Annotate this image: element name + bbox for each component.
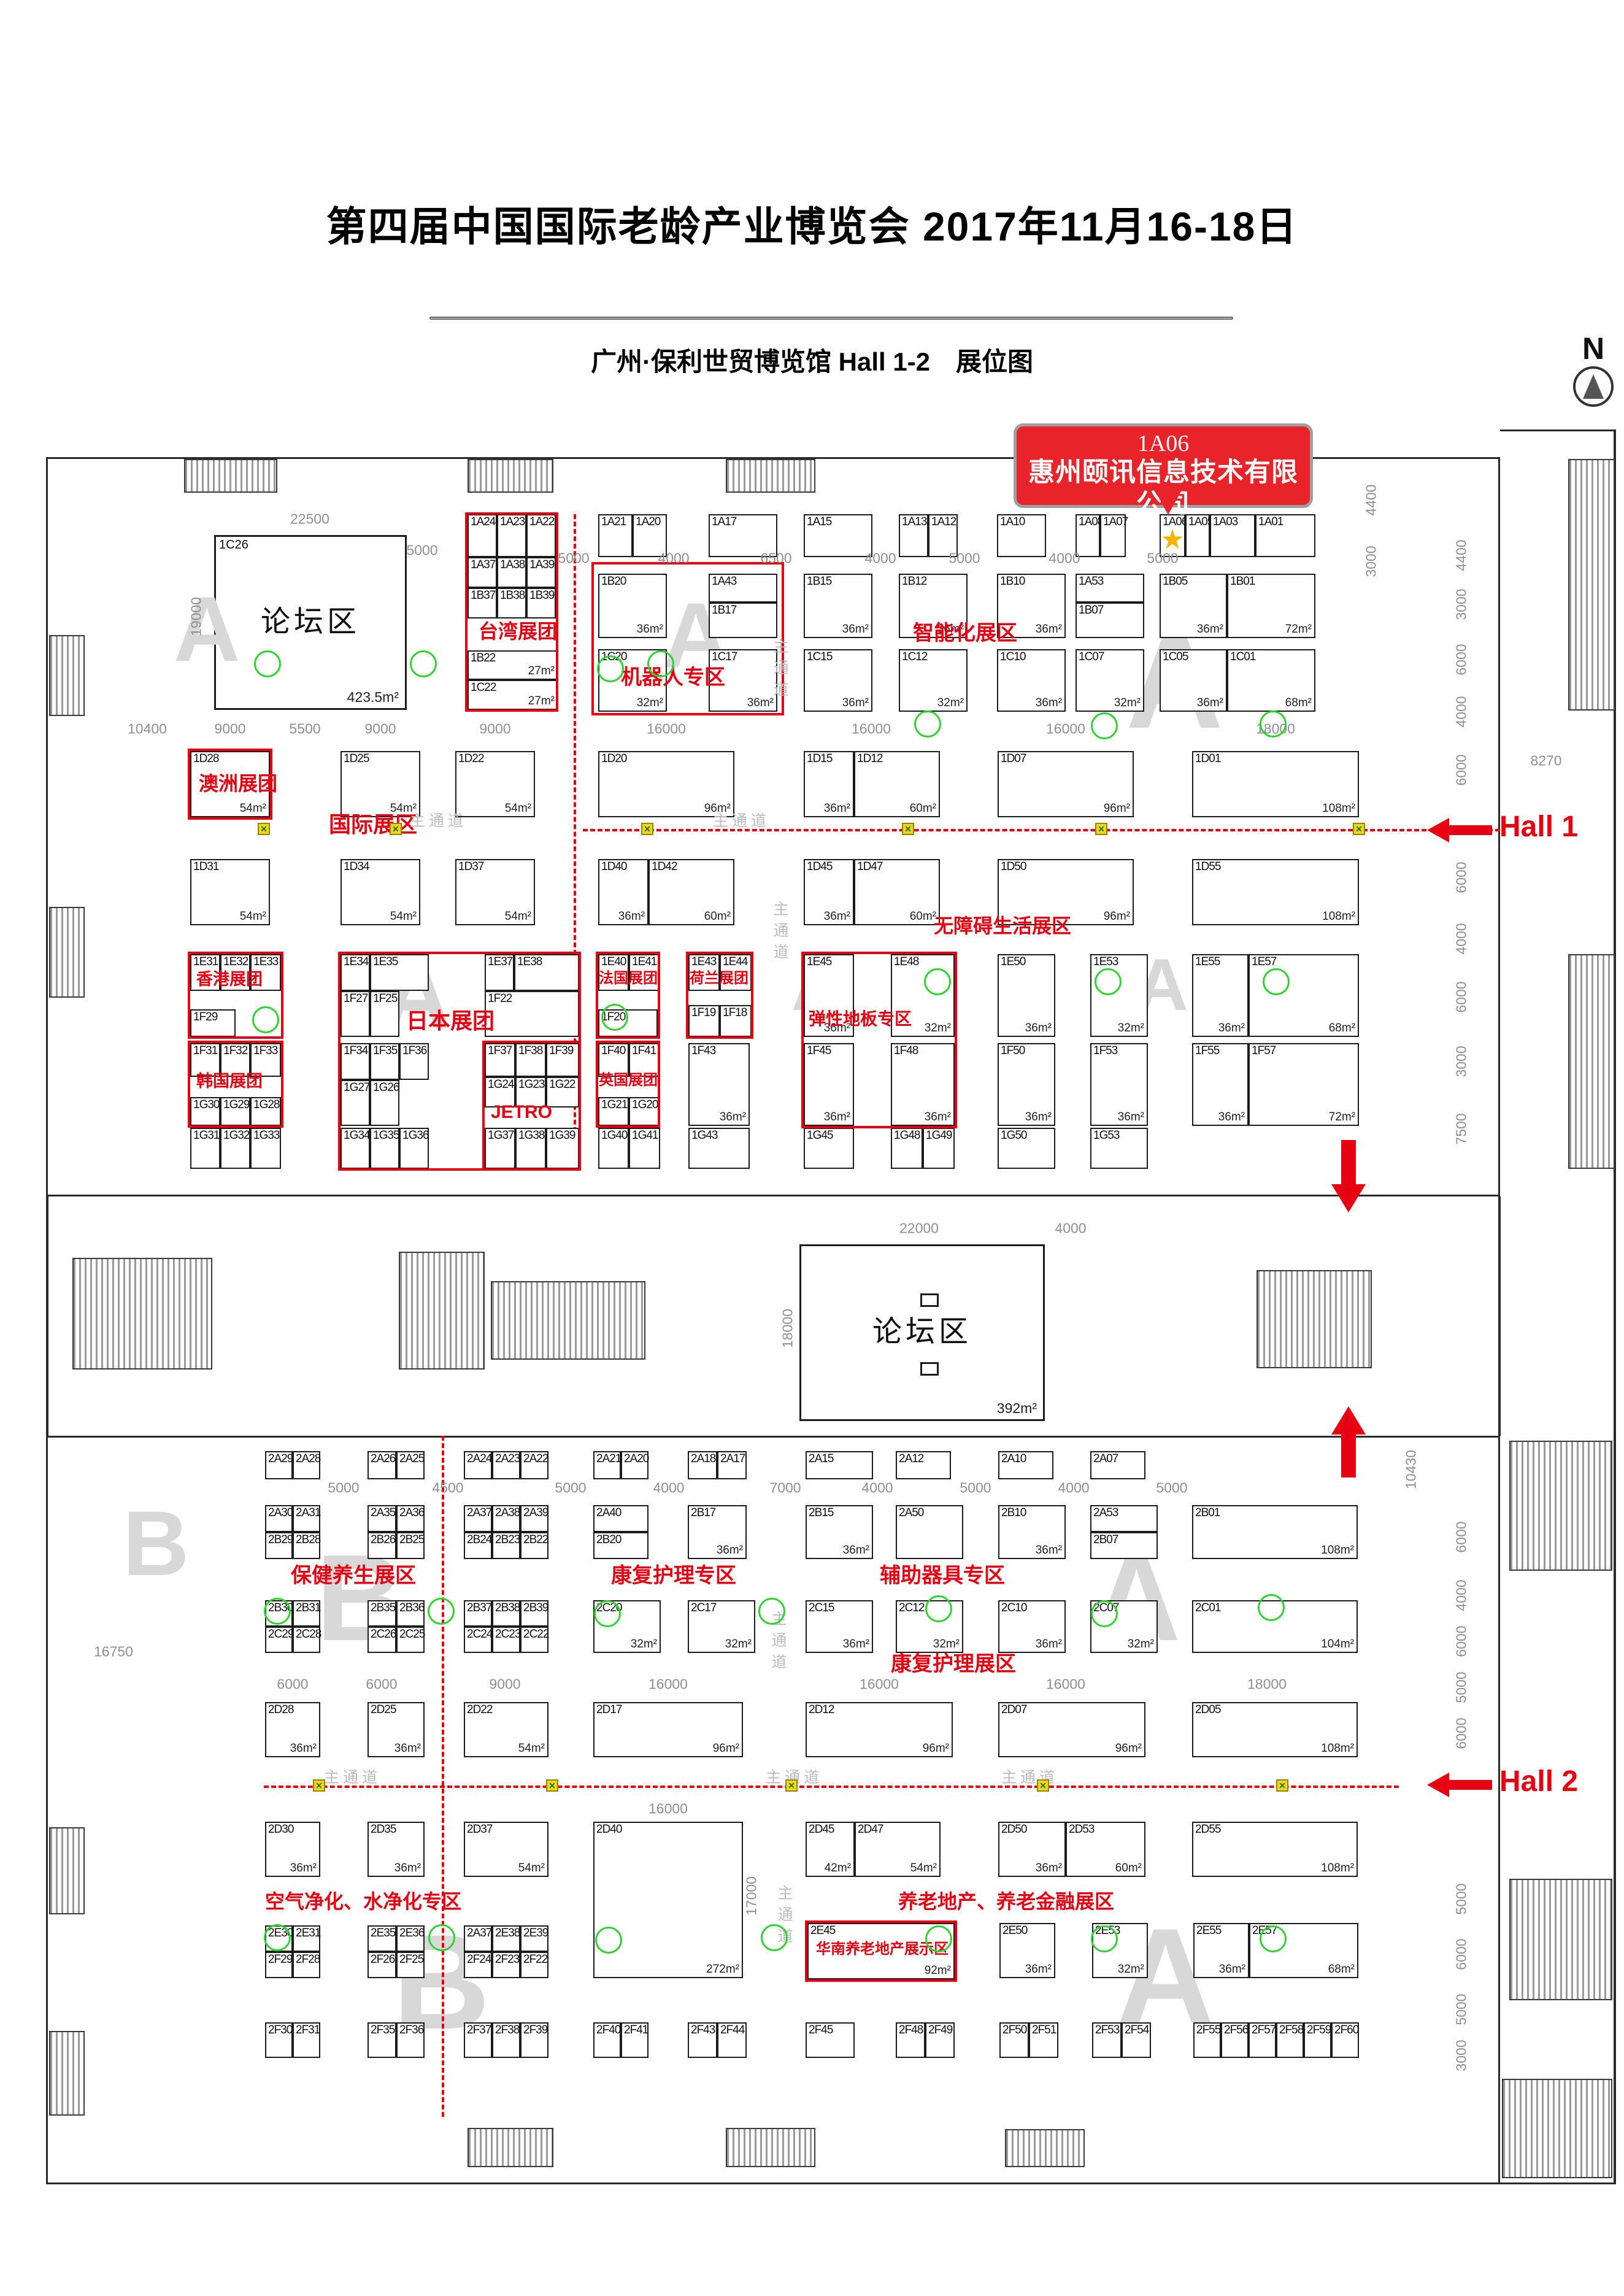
dimension-label: 5000 [555, 1480, 586, 1497]
forum-area-central: 论坛区 392m² [799, 1244, 1045, 1421]
booth-area-label: 36m² [290, 1862, 317, 1875]
booth-id-label: 1F31 [193, 1044, 217, 1058]
booth-2F30: 2F30 [265, 2022, 293, 2058]
dimension-label: 4000 [1055, 1220, 1086, 1237]
forum1-booth-id: 1C26 [219, 538, 248, 552]
booth-1D47: 1D4760m² [854, 859, 940, 925]
booth-area-label: 96m² [713, 1742, 739, 1755]
booth-1D34: 1D3454m² [341, 859, 420, 925]
booth-id-label: 1G21 [601, 1098, 627, 1112]
dimension-label: 16000 [648, 1801, 688, 1817]
stairs-block [726, 2128, 815, 2167]
dimension-label: 6000 [1453, 644, 1470, 675]
booth-id-label: 2F49 [928, 2024, 952, 2037]
booth-id-label: 2B07 [1093, 1533, 1118, 1547]
booth-2B17: 2B1736m² [688, 1505, 747, 1559]
booth-2B39: 2B39 [520, 1600, 548, 1627]
booth-id-label: 1B05 [1163, 575, 1187, 588]
booth-area-label: 108m² [1322, 910, 1355, 923]
booth-1G39: 1G39 [546, 1128, 579, 1169]
booth-2B10: 2B1036m² [998, 1505, 1066, 1559]
booth-area-label: 104m² [1321, 1638, 1354, 1651]
aisle-marker-icon: ✕ [390, 823, 402, 835]
booth-2F38: 2F38 [492, 2022, 520, 2058]
forum-column-marker [920, 1362, 939, 1376]
booth-id-label: 1G41 [632, 1129, 658, 1142]
booth-2D28: 2D2836m² [265, 1702, 320, 1757]
booth-id-label: 1E34 [344, 955, 368, 969]
booth-2C15: 2C1536m² [806, 1600, 873, 1653]
fire-equipment-circle-icon [1260, 711, 1287, 738]
booth-id-label: 2A28 [296, 1452, 320, 1466]
booth-1G21: 1G21 [598, 1097, 629, 1126]
booth-id-label: 2F51 [1032, 2024, 1056, 2037]
booth-id-label: 2B17 [691, 1506, 715, 1520]
booth-id-label: 1F48 [894, 1044, 918, 1058]
dimension-label: 6000 [1453, 861, 1470, 893]
booth-area-label: 36m² [1219, 1963, 1245, 1976]
booth-1G32: 1G32 [220, 1128, 250, 1169]
dimension-label: 4000 [1453, 923, 1470, 954]
booth-id-label: 1G32 [223, 1129, 249, 1142]
booth-1G45: 1G45 [804, 1128, 854, 1169]
booth-id-label: 1B12 [902, 575, 926, 588]
booth-id-label: 1G29 [223, 1098, 249, 1112]
booth-2A36: 2A36 [396, 1505, 425, 1532]
booth-id-label: 2A37 [467, 1506, 491, 1520]
booth-id-label: 2B38 [495, 1601, 520, 1615]
booth-id-label: 1E38 [517, 955, 542, 969]
booth-id-label: 2C23 [495, 1628, 520, 1641]
highlight-company-name: 惠州颐讯信息技术有限公司 [1017, 457, 1310, 520]
main-aisle-divider-line [264, 1786, 1399, 1788]
booth-id-label: 1E32 [223, 955, 248, 969]
highlight-callout: 1A06 惠州颐讯信息技术有限公司 [1014, 423, 1313, 508]
booth-2A20: 2A20 [621, 1451, 648, 1479]
booth-id-label: 2B29 [268, 1533, 293, 1547]
booth-2C28: 2C28 [293, 1627, 320, 1653]
booth-2A07: 2A07 [1090, 1451, 1145, 1479]
booth-id-label: 1G38 [518, 1129, 544, 1142]
fire-equipment-circle-icon [925, 1925, 952, 1952]
fire-equipment-circle-icon [254, 650, 281, 677]
booth-id-label: 2A07 [1093, 1452, 1118, 1466]
booth-1A07: 1A07 [1100, 514, 1126, 557]
booth-id-label: 1E48 [894, 955, 918, 969]
booth-2A21: 2A21 [593, 1451, 621, 1479]
dimension-label: 5000 [406, 542, 437, 559]
booth-1G36: 1G36 [399, 1128, 429, 1169]
booth-area-label: 108m² [1321, 1862, 1354, 1875]
booth-2B24: 2B24 [464, 1532, 492, 1559]
booth-id-label: 1B38 [500, 589, 525, 603]
booth-id-label: 1D28 [193, 752, 218, 766]
booth-2D47: 2D4754m² [855, 1822, 941, 1877]
booth-id-label: 2F56 [1224, 2024, 1248, 2037]
booth-1C10: 1C1036m² [997, 649, 1066, 712]
booth-id-label: 2C10 [1001, 1601, 1026, 1615]
booth-1D12: 1D1260m² [854, 751, 940, 817]
booth-id-label: 1G40 [601, 1129, 627, 1142]
booth-2D05: 2D05108m² [1192, 1702, 1358, 1757]
flow-arrow-shaft [1341, 1433, 1356, 1477]
dimension-label: 4500 [432, 1480, 463, 1497]
fire-equipment-circle-icon [601, 1004, 628, 1031]
booth-1D55: 1D55108m² [1192, 859, 1359, 925]
booth-1B37: 1B37 [468, 588, 497, 618]
booth-area-label: 54m² [390, 910, 417, 923]
booth-area-label: 36m² [843, 1544, 869, 1557]
booth-id-label: 2D37 [467, 1823, 492, 1836]
zone-label: 机器人专区 [621, 666, 725, 689]
booth-2F43: 2F43 [688, 2022, 717, 2058]
booth-1G41: 1G41 [629, 1128, 660, 1169]
booth-2B25: 2B25 [396, 1532, 425, 1559]
forum-column-marker [920, 1293, 939, 1307]
booth-id-label: 2F38 [495, 2024, 519, 2037]
booth-1G34: 1G34 [341, 1128, 370, 1169]
dimension-label: 16000 [860, 1676, 899, 1693]
booth-1B05: 1B0536m² [1160, 574, 1227, 638]
booth-1B07: 1B07 [1076, 603, 1144, 638]
booth-id-label: 1E53 [1093, 955, 1118, 969]
stairs-block [49, 907, 85, 998]
booth-1F25: 1F25 [370, 991, 399, 1037]
booth-id-label: 2B23 [495, 1533, 520, 1547]
stairs-block [49, 1827, 85, 1914]
booth-id-label: 1B39 [529, 589, 554, 603]
booth-1G35: 1G35 [370, 1128, 399, 1169]
dimension-label: 4400 [1363, 484, 1380, 515]
booth-id-label: 2F22 [523, 1953, 547, 1967]
booth-id-label: 1F36 [402, 1044, 426, 1058]
dimension-label: 22000 [899, 1220, 939, 1237]
booth-id-label: 1A53 [1079, 575, 1103, 588]
booth-2D12: 2D1296m² [806, 1702, 953, 1757]
booth-id-label: 1F18 [723, 1006, 747, 1020]
booth-2E55: 2E5536m² [1193, 1923, 1249, 1978]
booth-area-label: 32m² [725, 1638, 752, 1651]
hall2-label: Hall 2 [1499, 1765, 1578, 1798]
booth-id-label: 2A25 [399, 1452, 424, 1466]
forum2-label: 论坛区 [801, 1307, 1043, 1350]
dimension-label: 10430 [1403, 1450, 1420, 1489]
booth-id-label: 1A43 [712, 575, 736, 588]
booth-id-label: 1G28 [253, 1098, 279, 1112]
booth-2B01: 2B01108m² [1192, 1505, 1358, 1559]
zone-label: 法国展团 [599, 971, 658, 987]
booth-1G31: 1G31 [190, 1128, 220, 1169]
booth-2B15: 2B1536m² [806, 1505, 873, 1559]
booth-id-label: 1D37 [458, 860, 483, 874]
booth-1G48: 1G48 [891, 1128, 923, 1169]
booth-id-label: 1A22 [529, 515, 554, 529]
booth-1C15: 1C1536m² [804, 649, 872, 712]
booth-id-label: 1F39 [549, 1044, 573, 1058]
booth-area-label: 60m² [910, 802, 936, 815]
booth-2D50: 2D5036m² [998, 1822, 1066, 1877]
booth-area-label: 108m² [1321, 1742, 1354, 1755]
booth-1G27: 1G27 [341, 1080, 370, 1126]
booth-id-label: 2D47 [858, 1823, 883, 1836]
booth-id-label: 2F44 [720, 2024, 744, 2037]
zone-label: 澳洲展团 [199, 773, 277, 795]
entrance-arrow-shaft [1448, 825, 1492, 835]
booth-2E50: 2E5036m² [999, 1923, 1055, 1978]
booth-id-label: 1G53 [1093, 1129, 1119, 1142]
booth-2F44: 2F44 [717, 2022, 747, 2058]
booth-1F57: 1F5772m² [1249, 1043, 1359, 1126]
booth-1A03: 1A03 [1210, 514, 1255, 557]
dimension-label: 7500 [1453, 1113, 1470, 1144]
booth-2A24: 2A24 [464, 1451, 492, 1479]
fire-equipment-circle-icon [264, 1598, 291, 1625]
booth-area-label: 36m² [842, 623, 869, 636]
booth-2C24: 2C24 [464, 1627, 492, 1653]
booth-area-label: 36m² [717, 1544, 743, 1557]
booth-2A25: 2A25 [396, 1451, 425, 1479]
booth-2A29: 2A29 [265, 1451, 293, 1479]
dimension-label: 9000 [214, 721, 245, 738]
booth-id-label: 2F23 [495, 1953, 519, 1967]
booth-2A53: 2A53 [1090, 1505, 1158, 1532]
dimension-label: 8270 [1530, 753, 1561, 769]
dimension-label: 22500 [290, 511, 329, 528]
booth-1G37: 1G37 [485, 1128, 515, 1169]
booth-id-label: 1F50 [1001, 1044, 1025, 1058]
hall-watermark-letter: A [174, 583, 240, 675]
dimension-label: 4000 [653, 1480, 684, 1497]
booth-1A38: 1A38 [497, 557, 526, 588]
booth-id-label: 2C25 [399, 1628, 425, 1641]
booth-2C23: 2C23 [492, 1627, 520, 1653]
booth-id-label: 1A13 [902, 515, 926, 529]
booth-id-label: 2F58 [1279, 2024, 1303, 2037]
booth-id-label: 1C22 [471, 681, 496, 695]
booth-1D45: 1D4536m² [804, 859, 854, 925]
booth-2F53: 2F53 [1092, 2022, 1122, 2058]
booth-2A10: 2A10 [998, 1451, 1053, 1479]
booth-1A01: 1A01 [1255, 514, 1315, 557]
booth-id-label: 1F19 [691, 1006, 715, 1020]
booth-2D40: 2D40272m² [593, 1822, 743, 1978]
stairs-block [1256, 1270, 1372, 1368]
booth-2A39: 2A39 [520, 1505, 548, 1532]
booth-id-label: 1D25 [344, 752, 369, 766]
forum1-area: 423.5m² [347, 689, 399, 706]
booth-2F56: 2F56 [1221, 2022, 1249, 2058]
booth-2A30: 2A30 [265, 1505, 293, 1532]
booth-1F35: 1F35 [370, 1043, 399, 1080]
booth-1D31: 1D3154m² [190, 859, 270, 925]
dimension-label: 6000 [1453, 1521, 1470, 1552]
booth-1F19: 1F19 [688, 1005, 720, 1037]
booth-area-label: 54m² [910, 1862, 937, 1875]
booth-2F41: 2F41 [621, 2022, 648, 2058]
booth-1B01: 1B0172m² [1227, 574, 1315, 638]
booth-area-label: 54m² [518, 1862, 545, 1875]
booth-id-label: 2F36 [399, 2024, 423, 2037]
booth-area-label: 36m² [1025, 1111, 1052, 1124]
dimension-label: 5000 [1453, 1994, 1470, 2025]
booth-2D55: 2D55108m² [1192, 1822, 1358, 1877]
booth-id-label: 1G50 [1001, 1129, 1026, 1142]
dimension-label: 6000 [277, 1676, 308, 1693]
booth-1D07: 1D0796m² [998, 751, 1134, 817]
booth-2C25: 2C25 [396, 1627, 425, 1653]
zone-label: 辅助器具专区 [880, 1565, 1005, 1587]
booth-id-label: 1F57 [1252, 1044, 1276, 1058]
booth-id-label: 2D53 [1069, 1823, 1094, 1836]
hall1-label: Hall 1 [1499, 810, 1578, 844]
dimension-label: 10400 [128, 721, 167, 738]
booth-1F50: 1F5036m² [998, 1043, 1055, 1126]
booth-area-label: 54m² [240, 802, 266, 815]
stairs-block [184, 459, 277, 493]
aisle-text: 主通道 [1001, 1765, 1058, 1787]
booth-id-label: 2F37 [467, 2024, 491, 2037]
booth-1F48: 1F4836m² [891, 1043, 955, 1126]
stairs-block [1509, 1879, 1612, 2000]
forum2-area: 392m² [997, 1400, 1037, 1417]
north-compass-icon: N [1566, 333, 1621, 407]
booth-1A10: 1A10 [997, 514, 1046, 557]
booth-id-label: 1A17 [712, 515, 736, 529]
booth-1A05: 1A05 [1185, 514, 1210, 557]
dimension-label: 5500 [289, 721, 320, 738]
fire-equipment-circle-icon [410, 650, 437, 677]
zone-label: 无障碍生活展区 [934, 915, 1071, 937]
booth-id-label: 1G43 [691, 1129, 717, 1142]
booth-2A31: 2A31 [293, 1505, 320, 1532]
stairs-block [726, 459, 815, 493]
booth-2F49: 2F49 [925, 2022, 955, 2058]
dimension-label: 18000 [780, 1309, 796, 1348]
booth-area-label: 60m² [910, 910, 936, 923]
dimension-label: 5000 [558, 550, 589, 567]
booth-id-label: 1E45 [807, 955, 831, 969]
entrance-arrow-icon [1427, 1773, 1449, 1797]
booth-id-label: 1F43 [691, 1044, 715, 1058]
booth-2F40: 2F40 [593, 2022, 621, 2058]
booth-area-label: 60m² [704, 910, 731, 923]
booth-id-label: 2A22 [523, 1452, 548, 1466]
booth-id-label: 2D07 [1001, 1703, 1026, 1717]
booth-area-label: 54m² [518, 1742, 545, 1755]
booth-1G38: 1G38 [515, 1128, 546, 1169]
dimension-label: 16000 [1046, 721, 1085, 738]
dimension-label: 4000 [1453, 1579, 1470, 1611]
forum-area-hall1: 1C26 论坛区 423.5m² [214, 535, 407, 710]
booth-2E38: 2E38 [492, 1925, 520, 1952]
booth-id-label: 2F54 [1125, 2024, 1149, 2037]
booth-id-label: 2F26 [371, 1953, 394, 1967]
booth-1G29: 1G29 [220, 1097, 250, 1126]
booth-1D22: 1D2254m² [455, 751, 535, 817]
booth-2F57: 2F57 [1249, 2022, 1276, 2058]
booth-id-label: 2F60 [1334, 2024, 1358, 2037]
booth-2B20: 2B20 [593, 1532, 648, 1559]
stairs-block [72, 1258, 212, 1370]
booth-id-label: 2C28 [296, 1628, 321, 1641]
booth-area-label: 32m² [1114, 696, 1141, 710]
booth-id-label: 2E31 [296, 1927, 320, 1940]
booth-id-label: 2D22 [467, 1703, 492, 1717]
booth-id-label: 1A23 [500, 515, 525, 529]
entrance-arrow-icon [1427, 818, 1449, 842]
booth-id-label: 2E45 [810, 1924, 835, 1938]
booth-area-label: 36m² [824, 802, 850, 815]
booth-2F24: 2F24 [464, 1952, 492, 1978]
booth-id-label: 1F25 [373, 992, 397, 1006]
dimension-label: 4000 [864, 550, 896, 567]
booth-1E53: 1E5332m² [1090, 954, 1148, 1037]
page-subtitle: 广州·保利世贸博览馆 Hall 1-2 展位图 [0, 341, 1624, 379]
booth-2A50: 2A50 [896, 1505, 963, 1559]
zone-label: 保健养生展区 [291, 1565, 416, 1587]
corridor-wall-left [46, 1196, 48, 1436]
dimension-label: 4000 [1453, 696, 1470, 727]
booth-id-label: 2F30 [268, 2024, 292, 2037]
booth-2B35: 2B35 [368, 1600, 396, 1627]
flow-arrow-icon [1331, 1406, 1366, 1435]
booth-2E31: 2E31 [293, 1925, 320, 1952]
booth-id-label: 1C01 [1230, 650, 1255, 664]
fire-equipment-circle-icon [428, 1924, 455, 1951]
booth-1A39: 1A39 [526, 557, 556, 588]
dimension-label: 5000 [328, 1480, 359, 1497]
dimension-label: 6000 [1453, 1717, 1470, 1749]
booth-id-label: 1D34 [344, 860, 369, 874]
dimension-label: 9000 [364, 721, 396, 738]
zone-label: 养老地产、养老金融展区 [898, 1891, 1114, 1913]
dimension-label: 9000 [479, 721, 510, 738]
booth-2D53: 2D5360m² [1066, 1822, 1145, 1877]
aisle-marker-icon: ✕ [641, 823, 653, 835]
booth-2E35: 2E35 [368, 1925, 396, 1952]
booth-area-label: 36m² [394, 1742, 421, 1755]
booth-id-label: 1D31 [193, 860, 218, 874]
booth-area-label: 32m² [933, 1638, 960, 1651]
booth-id-label: 2B36 [399, 1601, 424, 1615]
booth-id-label: 1G31 [193, 1129, 219, 1142]
booth-1A22: 1A22 [526, 514, 556, 557]
corridor-wall-right [1498, 1196, 1501, 1436]
booth-area-label: 36m² [1025, 1022, 1052, 1035]
booth-id-label: 2E36 [399, 1927, 424, 1940]
highlight-booth-number: 1A06 [1017, 431, 1310, 457]
booth-id-label: 1G24 [488, 1078, 514, 1092]
booth-id-label: 2C17 [691, 1601, 716, 1615]
booth-1G33: 1G33 [250, 1128, 281, 1169]
fire-equipment-circle-icon [597, 655, 624, 682]
dimension-label: 4000 [1058, 1480, 1089, 1497]
booth-1F18: 1F18 [720, 1005, 752, 1037]
booth-1D15: 1D1536m² [804, 751, 854, 817]
booth-id-label: 2A50 [899, 1506, 923, 1520]
zone-label: 荷兰展团 [690, 971, 749, 987]
booth-2A18: 2A18 [688, 1451, 717, 1479]
booth-2A28: 2A28 [293, 1451, 320, 1479]
dimension-label: 5000 [949, 550, 980, 567]
booth-id-label: 2B10 [1001, 1506, 1026, 1520]
booth-2A26: 2A26 [368, 1451, 396, 1479]
booth-id-label: 2A36 [399, 1506, 424, 1520]
booth-1E38: 1E38 [514, 954, 579, 991]
booth-id-label: 2B25 [399, 1533, 424, 1547]
stairs-block [1568, 954, 1615, 1169]
booth-id-label: 2C15 [809, 1601, 834, 1615]
